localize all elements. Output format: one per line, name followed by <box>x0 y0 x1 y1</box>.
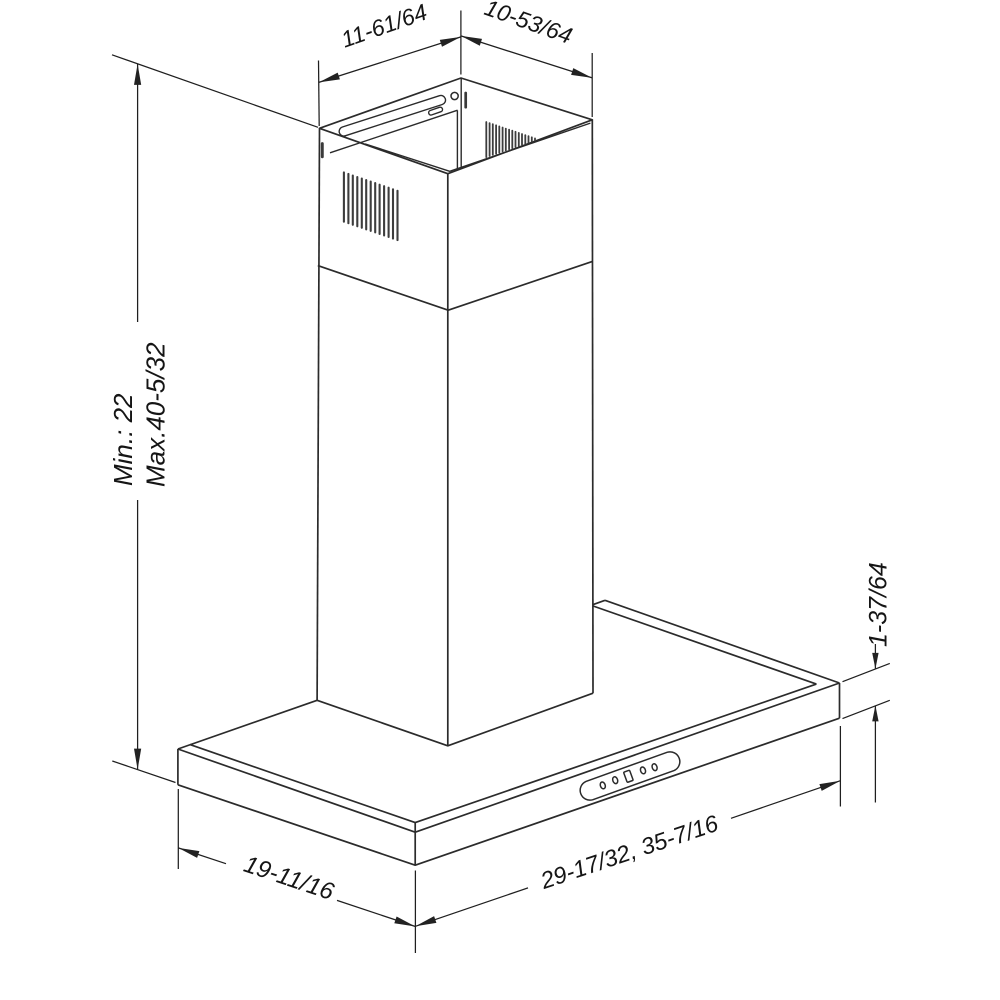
svg-text:Max.40-5/32: Max.40-5/32 <box>141 342 171 487</box>
svg-text:1-37/64: 1-37/64 <box>865 562 893 647</box>
svg-text:Min.: 22: Min.: 22 <box>108 393 138 486</box>
